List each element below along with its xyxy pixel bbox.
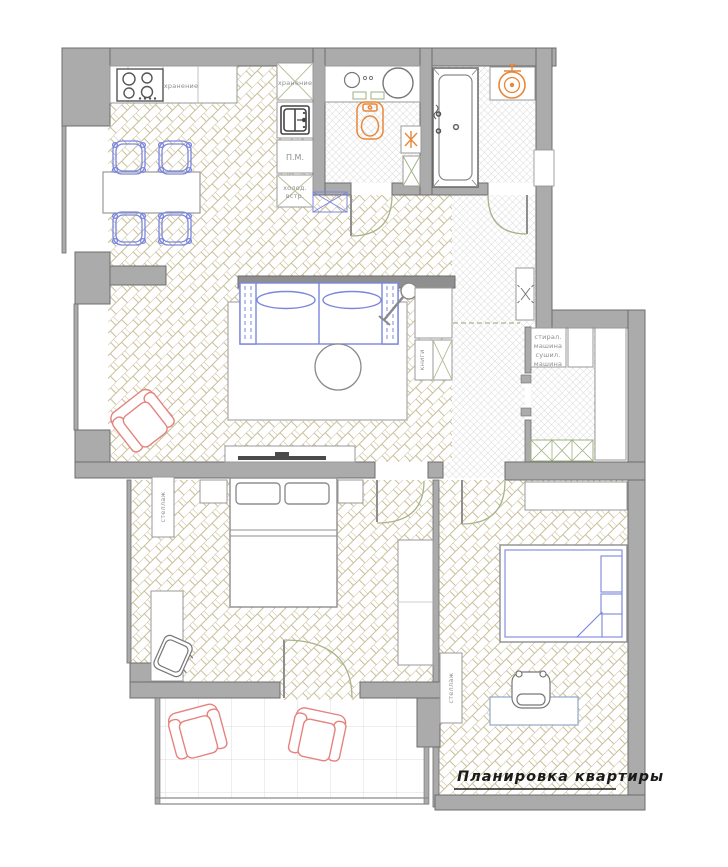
bookshelf-box-top [415,288,452,338]
nightstand-right [338,480,363,503]
wall-right-main [628,310,645,810]
tv-unit [225,446,355,462]
wall-kitchen-wc [313,48,325,195]
wall-topleft-pier [62,48,110,126]
label-dryer-line1: сушил. [535,351,560,359]
dining-table [103,172,200,213]
wall-laundry-left-a [525,327,531,373]
sofa [240,283,398,344]
label-counter-storage: хранение [164,82,198,90]
hallway [516,268,534,320]
tv-icon [238,456,326,460]
label-dryer-line2: машина [534,360,563,368]
bed-double [230,478,337,607]
wall-bedroom2-top [505,462,645,480]
wall-laundry-nub-b [521,408,531,416]
label-column-storage: хранение [278,79,312,87]
wc-drain-unit [401,126,421,153]
wall-bedrooms-divider [433,480,439,807]
label-washer-line2: машина [534,342,563,350]
label-dishwasher: П.М. [286,153,304,162]
wall-laundry-left-b [525,420,531,465]
label-bedroom2-shelving: стеллаж [447,673,455,704]
label-fridge-line1: холод. [283,184,307,192]
nightstand-left [200,480,227,503]
label-bedroom1-shelving: стеллаж [159,492,167,523]
laundry-storage-boxes [531,440,593,461]
bed-single [500,545,627,642]
wall-left-thin-lower [74,304,78,430]
hallway-floor [443,195,536,478]
wall-right-mid [536,186,552,328]
wall-balcony-left [155,698,160,804]
label-fridge-line2: встр. [286,192,304,200]
wall-laundry-nub-a [521,375,531,383]
page-title: Планировка квартиры [457,769,664,785]
wc-vessel-sink-icon [383,68,413,98]
wall-balcony-pier [417,698,440,747]
wall-right-upper [536,48,552,150]
bedroom1-wardrobe [398,540,433,665]
wc-cabinet [403,156,420,186]
wall-left-thin-upper [62,126,66,253]
label-books: книги [418,349,426,370]
wall-bedroom1-bottom [130,682,280,698]
wall-living-bottom [75,462,375,478]
laundry-floor [531,367,595,442]
kitchen-sink-icon [281,106,309,134]
wall-left-stub [110,266,166,285]
kitchen-floor-strip [237,66,277,103]
balcony-glazing [155,798,429,804]
wall-balcony-right [424,747,429,804]
balcony-threshold-floor [280,683,360,700]
wall-wc-bath [420,48,432,195]
laundry-box [568,328,593,367]
laundry-cabinet-tall [595,328,626,460]
wall-living-bottom-right [428,462,443,478]
vent-shaft [516,268,534,320]
bathtub-icon [433,68,478,187]
boiler-icon [490,65,535,100]
floor-plan-page: хранение хранение П.М. холод. встр. книг… [0,0,728,867]
bedroom2-desk-chair [512,671,550,708]
wall-bedroom2-bottom [435,795,645,810]
wc-small-sink-icon [345,73,360,88]
wall-left-pier-mid [75,252,110,304]
bedroom2-shelf [525,482,627,510]
coffee-table [315,344,361,390]
entry-door-panel [534,150,554,186]
floor-plan-drawing: хранение хранение П.М. холод. встр. книг… [0,0,728,867]
wall-bedroom1-bottom-right [360,682,440,698]
tv-stand [275,452,289,456]
label-washer-line1: стирал. [534,333,561,341]
wall-bedroom1-left [127,480,131,663]
stove-icon [117,69,163,101]
